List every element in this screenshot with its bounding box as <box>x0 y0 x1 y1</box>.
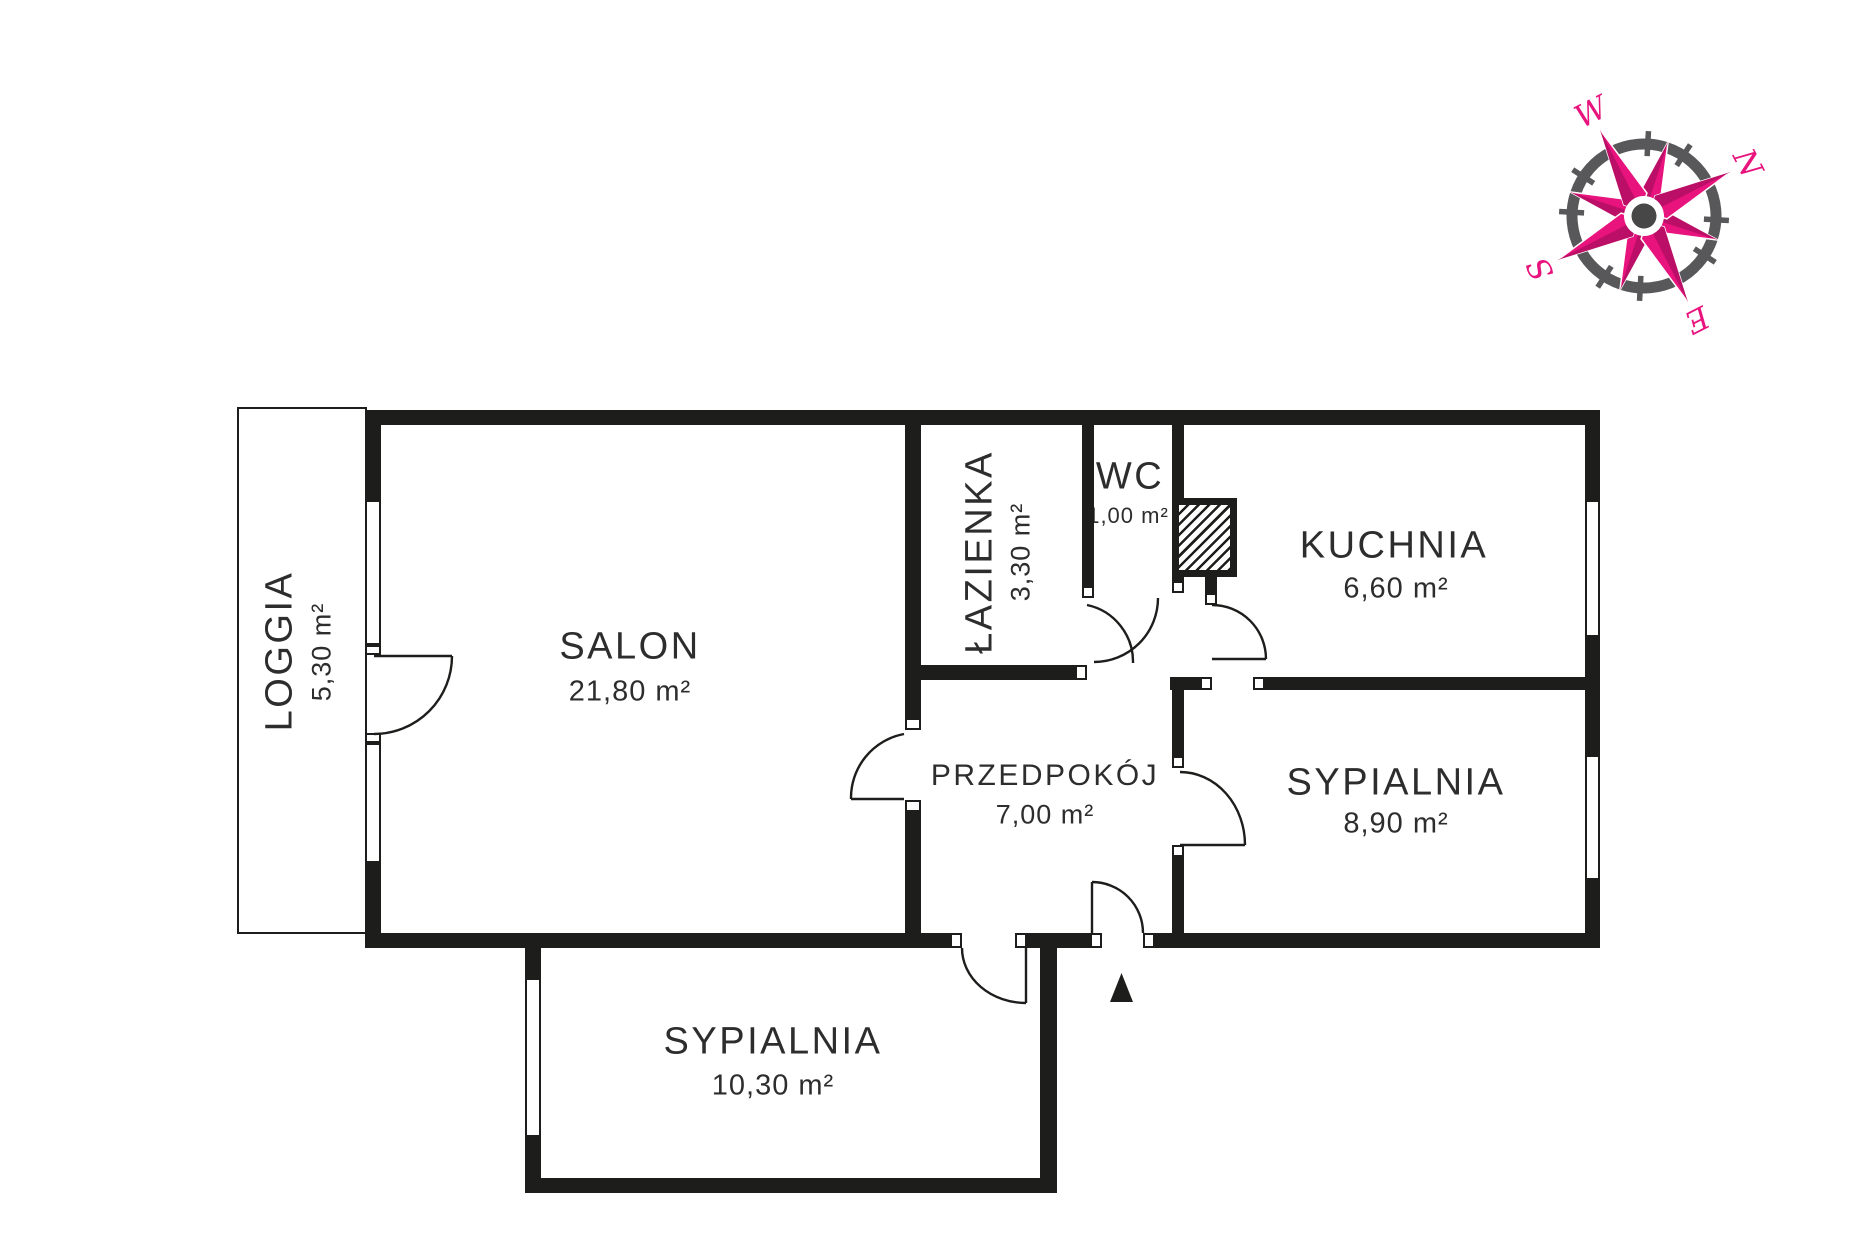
bedroom-east-door-swing-icon <box>1180 772 1245 845</box>
entrance-door-swing-icon <box>1092 882 1143 933</box>
balcony-door-swing-icon <box>374 656 452 734</box>
wc-door-swing-icon <box>1094 598 1158 662</box>
compass-tick <box>1559 212 1584 213</box>
entrance-triangle-icon <box>1110 973 1133 1002</box>
compass-rose-icon: N E S W <box>1464 36 1824 396</box>
compass-east-label: E <box>1678 298 1716 341</box>
salon-door-swing-icon <box>851 734 904 799</box>
compass-west-label: W <box>1569 88 1616 136</box>
plan-overlay: N E S W <box>0 0 1852 1252</box>
compass-tick <box>1647 131 1648 156</box>
kitchen-door-swing-icon <box>1212 605 1266 659</box>
compass-south-label: S <box>1520 251 1562 286</box>
bedroom-south-door-swing-icon <box>962 948 1026 1003</box>
compass-north-label: N <box>1725 142 1771 185</box>
compass-tick <box>1640 276 1641 301</box>
compass-tick <box>1704 219 1729 220</box>
floor-plan: LOGGIA 5,30 m² SALON 21,80 m² ŁAZIENKA 3… <box>0 0 1852 1252</box>
